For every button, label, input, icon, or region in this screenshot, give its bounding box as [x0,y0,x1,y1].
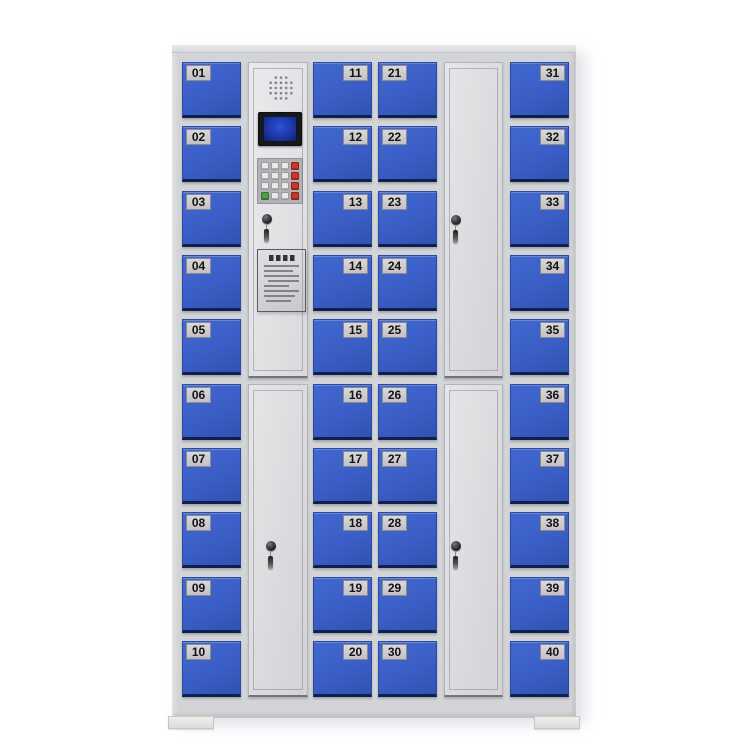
keypad-key [291,162,299,170]
locker-number-plate: 08 [186,515,211,531]
locker-number-plate: 04 [186,258,211,274]
locker-door-21: 21 [378,62,437,118]
locker-number-plate: 09 [186,580,211,596]
keypad-key [261,172,269,180]
locker-door-11: 11 [313,62,372,118]
locker-door-18: 18 [313,512,372,568]
locker-door-20: 20 [313,641,372,697]
locker-door-23: 23 [378,191,437,247]
locker-door-27: 27 [378,448,437,504]
keypad [257,158,303,204]
locker-number-plate: 27 [382,451,407,467]
locker-number-plate: 32 [540,129,565,145]
locker-number-plate: 22 [382,129,407,145]
locker-door-14: 14 [313,255,372,311]
locker-door-31: 31 [510,62,569,118]
locker-number-plate: 16 [343,387,368,403]
locker-number-plate: 12 [343,129,368,145]
locker-door-17: 17 [313,448,372,504]
keypad-key [281,172,289,180]
locker-door-01: 01 [182,62,241,118]
keypad-key [281,192,289,200]
key-lock-icon [451,215,461,225]
locker-door-40: 40 [510,641,569,697]
locker-number-plate: 19 [343,580,368,596]
locker-number-plate: 40 [540,644,565,660]
locker-door-32: 32 [510,126,569,182]
keypad-key [271,172,279,180]
locker-door-24: 24 [378,255,437,311]
keypad-key [261,182,269,190]
locker-door-33: 33 [510,191,569,247]
cabinet-foot-right [534,716,580,729]
locker-number-plate: 36 [540,387,565,403]
key-lock-icon [451,541,461,551]
locker-door-35: 35 [510,319,569,375]
locker-door-28: 28 [378,512,437,568]
speaker-icon [268,75,294,101]
cabinet-foot-left [168,716,214,729]
keypad-key [271,192,279,200]
locker-door-08: 08 [182,512,241,568]
locker-door-19: 19 [313,577,372,633]
locker-door-29: 29 [378,577,437,633]
right-tall-bottom-door [444,384,503,697]
locker-number-plate: 11 [343,65,368,81]
locker-door-04: 04 [182,255,241,311]
locker-number-plate: 24 [382,258,407,274]
locker-number-plate: 35 [540,322,565,338]
locker-number-plate: 06 [186,387,211,403]
control-panel-door [248,62,308,378]
locker-door-26: 26 [378,384,437,440]
locker-door-12: 12 [313,126,372,182]
locker-number-plate: 29 [382,580,407,596]
locker-door-06: 06 [182,384,241,440]
locker-number-plate: 03 [186,194,211,210]
locker-door-22: 22 [378,126,437,182]
locker-door-03: 03 [182,191,241,247]
cabinet-top-edge [172,45,576,53]
keypad-key [281,182,289,190]
locker-door-38: 38 [510,512,569,568]
hanging-key-icon [453,230,458,243]
locker-column-1: 01020304050607080910 [182,62,241,697]
locker-number-plate: 33 [540,194,565,210]
control-column [248,62,308,697]
locker-number-plate: 25 [382,322,407,338]
instruction-plate-title [269,255,295,261]
locker-door-02: 02 [182,126,241,182]
hanging-key-icon [264,229,269,242]
locker-number-plate: 17 [343,451,368,467]
locker-number-plate: 31 [540,65,565,81]
locker-number-plate: 38 [540,515,565,531]
locker-number-plate: 23 [382,194,407,210]
lcd-screen [264,117,296,141]
locker-number-plate: 15 [343,322,368,338]
keypad-key [281,162,289,170]
locker-door-25: 25 [378,319,437,375]
locker-door-13: 13 [313,191,372,247]
locker-door-37: 37 [510,448,569,504]
locker-number-plate: 14 [343,258,368,274]
locker-number-plate: 37 [540,451,565,467]
locker-number-plate: 20 [343,644,368,660]
key-lock-icon [266,541,276,551]
lcd-display [258,112,302,146]
keypad-key [291,172,299,180]
locker-door-16: 16 [313,384,372,440]
keypad-key [271,162,279,170]
right-tall-top-door [444,62,503,378]
locker-door-05: 05 [182,319,241,375]
locker-cabinet: 01020304050607080910 1112131415161718192… [172,45,576,718]
keypad-key [271,182,279,190]
key-lock-icon [262,214,272,224]
locker-number-plate: 05 [186,322,211,338]
locker-number-plate: 10 [186,644,211,660]
locker-number-plate: 02 [186,129,211,145]
locker-number-plate: 39 [540,580,565,596]
locker-door-09: 09 [182,577,241,633]
locker-door-07: 07 [182,448,241,504]
locker-number-plate: 13 [343,194,368,210]
locker-number-plate: 21 [382,65,407,81]
keypad-key [261,192,269,200]
locker-column-3: 11121314151617181920 [313,62,372,697]
hanging-key-icon [268,556,273,569]
locker-door-30: 30 [378,641,437,697]
hanging-key-icon [453,556,458,569]
locker-number-plate: 28 [382,515,407,531]
locker-column-4: 21222324252627282930 [378,62,437,697]
keypad-key [291,192,299,200]
locker-door-10: 10 [182,641,241,697]
tall-door-column [444,62,503,697]
locker-number-plate: 01 [186,65,211,81]
locker-column-6: 31323334353637383940 [510,62,569,697]
keypad-key [291,182,299,190]
locker-number-plate: 18 [343,515,368,531]
locker-door-15: 15 [313,319,372,375]
locker-number-plate: 34 [540,258,565,274]
locker-number-plate: 07 [186,451,211,467]
locker-door-39: 39 [510,577,569,633]
locker-door-36: 36 [510,384,569,440]
locker-number-plate: 30 [382,644,407,660]
instruction-plate [257,249,306,312]
locker-door-34: 34 [510,255,569,311]
locker-number-plate: 26 [382,387,407,403]
control-column-bottom-door [248,384,308,697]
keypad-key [261,162,269,170]
